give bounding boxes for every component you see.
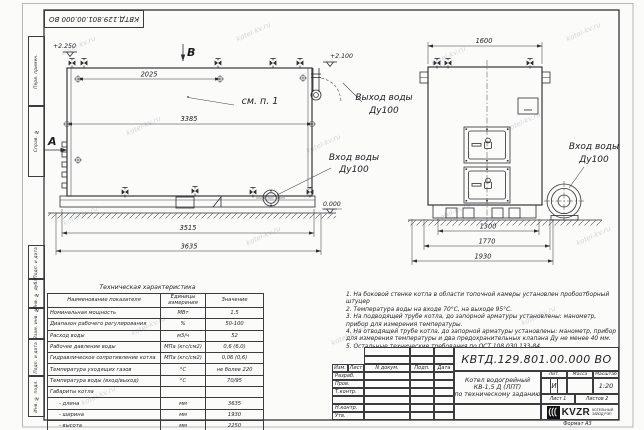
- value: 1,5: [206, 308, 264, 319]
- tech-row: Рабочее давление водыМПа (кгс/см2)0,6 (6…: [48, 341, 264, 352]
- dimension-lines: [412, 42, 553, 265]
- valve-icon: [69, 58, 304, 68]
- tb-cell: [434, 404, 454, 412]
- tb-cell: [550, 378, 559, 394]
- units: °С: [161, 364, 206, 375]
- outlet-label: Выход воды: [355, 93, 412, 103]
- view-label-b: В: [187, 46, 195, 59]
- tb-product-name: Котел водогрейный КВ-1,5 Д (ЛПТ) по техн…: [454, 371, 541, 404]
- callout-outlet: Выход воды Ду100: [343, 83, 413, 116]
- company-logo-text: KVZR: [562, 407, 590, 418]
- tb-cell: [454, 404, 541, 420]
- fan-icon: [544, 181, 584, 221]
- param: Температура воды (вход/выход): [48, 375, 161, 386]
- tb-row-prov: Пров.: [332, 380, 364, 388]
- value: 50-100: [206, 319, 264, 330]
- product-line-2: КВ-1,5 Д (ЛПТ): [474, 384, 521, 391]
- callout-inlet-front: Вход воды Ду100: [569, 142, 619, 188]
- dim-2025: 2025: [141, 71, 158, 79]
- value: 1930: [206, 409, 264, 420]
- callout-inlet-side: Вход воды Ду100: [277, 153, 379, 195]
- elevation-top-right: +2.100: [330, 53, 353, 60]
- tech-row: - длинамм3635: [48, 398, 264, 409]
- dim-3385: 3385: [181, 115, 198, 123]
- tech-row: - ширинамм1930: [48, 409, 264, 420]
- top-stamp-number: КВТД.129.801.00.000 ВО: [49, 15, 139, 23]
- tb-cell: [364, 356, 410, 365]
- param: - ширина: [48, 409, 161, 420]
- tb-cell: [364, 388, 410, 396]
- strip-label: Инв. № подл.: [34, 380, 39, 413]
- tb-logo-cell: KVZR КОТЕЛЬНЫЙ ЗАВОД РЭП: [541, 404, 619, 420]
- value: 70/95: [206, 375, 264, 386]
- tb-col-doc: N докум.: [364, 364, 410, 372]
- inlet-flange-icon: [256, 190, 286, 206]
- tb-cell: [364, 347, 410, 356]
- ground-hatch: [48, 213, 336, 219]
- tb-cell: [434, 396, 454, 404]
- tb-col-podp: Подп.: [410, 364, 434, 372]
- tb-row-tkontr: Т.контр.: [332, 388, 364, 396]
- company-name: КОТЕЛЬНЫЙ ЗАВОД РЭП: [592, 408, 613, 417]
- technical-notes: 1. На боковой стенке котла в области топ…: [346, 292, 617, 351]
- tb-cell: [364, 396, 410, 404]
- param: Номинальная мощность: [48, 308, 161, 319]
- elevation-marks: [63, 52, 342, 214]
- product-line-1: Котел водогрейный: [465, 377, 530, 384]
- note-3: 3. На подводящей трубе котла, до запорно…: [346, 314, 617, 329]
- note-4: 4. На отводящей трубе котла, до запорной…: [346, 329, 617, 344]
- tech-row: Гидравлическое сопротивление котлаМПа (к…: [48, 353, 264, 364]
- tb-scale-label: Масштаб: [593, 371, 619, 378]
- param: Температура уходящих газов: [48, 364, 161, 375]
- see-note-leader: [187, 96, 234, 105]
- tb-cell: [364, 412, 410, 420]
- tb-doc-number: КВТД.129.801.00.000 ВО: [454, 347, 619, 371]
- tb-mass-label: Масса: [567, 371, 593, 378]
- strip-label: Инв. № дубл.: [34, 277, 39, 309]
- tb-col-list: Лист: [348, 364, 364, 372]
- value: 2250: [206, 420, 264, 430]
- dim-3635: 3635: [181, 243, 198, 251]
- tb-col-data: Дата: [434, 364, 454, 372]
- units: мм: [161, 398, 206, 409]
- title-block: Изм. Лист N докум. Подп. Дата Разраб. Пр…: [332, 347, 619, 420]
- units: МПа (кгс/см2): [161, 341, 206, 352]
- tech-row: Расход водым3/ч52: [48, 330, 264, 341]
- tb-mass-value: [567, 378, 593, 394]
- tb-cell: [410, 347, 434, 356]
- value: 0,6 (6,0): [206, 341, 264, 352]
- tb-cell: [434, 388, 454, 396]
- tb-cell: [434, 356, 454, 365]
- tb-sheet: Лист 1: [541, 394, 575, 404]
- side-view: 2025 3385 3515 3635 +2.250 +2.100 0.000 …: [45, 43, 353, 255]
- inlet-front-label: Вход воды: [569, 142, 619, 152]
- top-stamp-box: КВТД.129.801.00.000 ВО: [44, 10, 144, 28]
- tb-row-utv: Утв.: [332, 412, 364, 420]
- param: - длина: [48, 398, 161, 409]
- tech-row: - высотамм2250: [48, 420, 264, 430]
- see-note-label: см. п. 1: [242, 96, 279, 107]
- tb-cell: [434, 372, 454, 380]
- param: Диапазон рабочего регулирования: [48, 319, 161, 330]
- units: °С: [161, 375, 206, 386]
- col-units: Единицы измерения: [161, 294, 206, 308]
- dim-1930: 1930: [475, 253, 492, 261]
- tb-scale-value: 1:20: [593, 378, 619, 394]
- value: 52: [206, 330, 264, 341]
- value: не более 220: [206, 364, 264, 375]
- tb-cell: [434, 347, 454, 356]
- value: 0,06 (0,6): [206, 353, 264, 364]
- inlet-front-dn-label: Ду100: [578, 155, 609, 165]
- col-param: Наименование показателя: [48, 294, 161, 308]
- tb-row-nkontr: Н.контр.: [332, 404, 364, 412]
- ground-hatch: [408, 220, 602, 226]
- drawing-page: kotel-kv.ru kotel-kv.ru kotel-kv.ru kote…: [0, 0, 644, 430]
- margin-strip-perv-primen: Перв. примен.: [28, 36, 45, 107]
- tb-cell: [410, 388, 434, 396]
- elevation-zero: 0.000: [323, 201, 341, 208]
- units: м3/ч: [161, 330, 206, 341]
- tb-col-izm: Изм.: [332, 364, 348, 372]
- inlet-side-label: Вход воды: [329, 153, 379, 163]
- tb-cell: [410, 356, 434, 365]
- company-line-2: ЗАВОД РЭП: [592, 412, 611, 416]
- units: МВт: [161, 308, 206, 319]
- units: мм: [161, 409, 206, 420]
- strip-label: Справ. №: [34, 129, 39, 152]
- inlet-side-dn-label: Ду100: [338, 165, 369, 175]
- tech-row: Габариты котла: [48, 387, 264, 398]
- tech-characteristics: Техническая характеристика Наименование …: [47, 284, 248, 430]
- margin-strip-inv-podl: Инв. № подл.: [28, 375, 45, 417]
- units: [161, 387, 206, 398]
- tech-row: Номинальная мощностьМВт1,5: [48, 308, 264, 319]
- dim-1770: 1770: [479, 238, 496, 246]
- tb-cell: [364, 380, 410, 388]
- format-note: Формат А3: [536, 421, 619, 427]
- view-label-a: А: [47, 135, 57, 148]
- strip-label: Перв. примен.: [34, 54, 39, 89]
- dim-3515: 3515: [180, 224, 197, 232]
- dim-1300: 1300: [480, 223, 497, 231]
- tb-cell: [364, 404, 410, 412]
- note-2: 2. Температура воды на входе 70°С, на вы…: [346, 307, 617, 314]
- tb-cell: [410, 396, 434, 404]
- margin-strip-inv-dubl: Инв. № дубл.: [28, 278, 45, 309]
- tech-row: Температура воды (вход/выход)°С70/95: [48, 375, 264, 386]
- tb-cell: [410, 372, 434, 380]
- margin-strip-podp-data-2: Подп. и дата: [28, 338, 45, 377]
- product-line-3: по техническому заданию: [454, 391, 540, 398]
- value: [206, 387, 264, 398]
- tech-header-row: Наименование показателя Единицы измерени…: [48, 294, 264, 308]
- kvzr-logo-icon: [547, 406, 560, 419]
- param: Габариты котла: [48, 387, 161, 398]
- outlet-dn-label: Ду100: [368, 106, 399, 116]
- param: Расход воды: [48, 330, 161, 341]
- margin-strip-vzam-inv: Взам. инв. №: [28, 307, 45, 340]
- units: мм: [161, 420, 206, 430]
- tb-cell: [410, 412, 434, 420]
- tech-table: Наименование показателя Единицы измерени…: [47, 293, 264, 430]
- units: МПа (кгс/см2): [161, 353, 206, 364]
- tb-cell: [434, 380, 454, 388]
- tb-cell: [410, 380, 434, 388]
- strip-label: Подп. и дата: [34, 342, 39, 374]
- tb-cell: [410, 404, 434, 412]
- base-frame: [433, 205, 536, 218]
- tech-row: Диапазон рабочего регулирования%50-100: [48, 319, 264, 330]
- tb-cell: [434, 412, 454, 420]
- value: 3635: [206, 398, 264, 409]
- tb-lit-label: Лит.: [541, 371, 567, 378]
- tb-cell: [332, 396, 364, 404]
- tb-cell: [364, 372, 410, 380]
- margin-strip-sprav-no: Справ. №: [28, 105, 45, 177]
- strip-label: Подп. и дата: [34, 247, 39, 279]
- param: - высота: [48, 420, 161, 430]
- param: Гидравлическое сопротивление котла: [48, 353, 161, 364]
- strip-label: Взам. инв. №: [34, 307, 39, 339]
- param: Рабочее давление воды: [48, 341, 161, 352]
- note-1: 1. На боковой стенке котла в области топ…: [346, 292, 617, 307]
- outlet-pipe: [311, 68, 341, 101]
- col-value: Значение: [206, 294, 264, 308]
- dim-1600: 1600: [476, 37, 493, 45]
- margin-strip-podp-data-1: Подп. и дата: [28, 245, 45, 280]
- elevation-top-left: +2.250: [53, 43, 76, 50]
- tech-row: Температура уходящих газов°Сне более 220: [48, 364, 264, 375]
- tech-table-title: Техническая характеристика: [47, 284, 248, 293]
- tb-row-razrab: Разраб.: [332, 372, 364, 380]
- tb-sheets: Листов 2: [575, 394, 619, 404]
- units: %: [161, 319, 206, 330]
